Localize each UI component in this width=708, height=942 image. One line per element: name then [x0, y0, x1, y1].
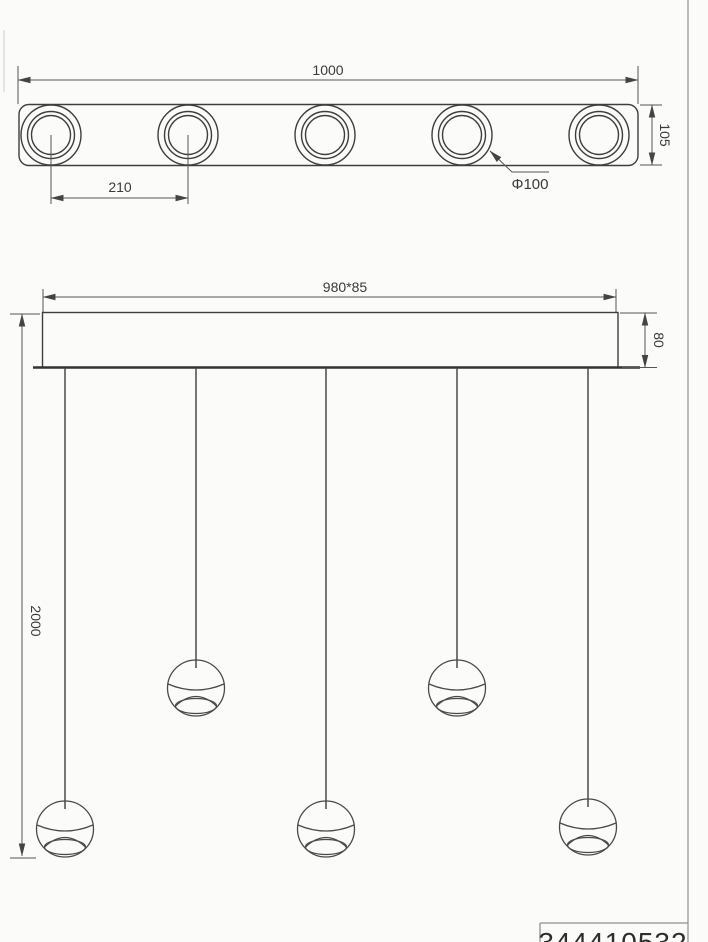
front-dim-canopy-height-label: 80 [651, 332, 667, 348]
front-dim-drop-label: 2000 [28, 605, 44, 636]
canopy-outline [43, 313, 619, 368]
pendant-globe-5 [560, 799, 617, 855]
plan-dim-diameter-label: Φ100 [512, 176, 549, 193]
drawing-page: 1000 [0, 0, 708, 942]
lamp-ring-5 [569, 105, 629, 165]
plan-dim-overall-width-label: 1000 [312, 62, 343, 78]
pendant-globe-2 [168, 660, 225, 716]
pendant-globe-1 [37, 801, 94, 857]
front-dim-drop [10, 314, 40, 858]
plan-view: 1000 [18, 62, 673, 204]
pendant-globe-4 [429, 660, 486, 716]
lamp-ring-4 [432, 105, 492, 165]
front-dim-canopy-label: 980*85 [323, 279, 368, 295]
plan-dim-bar-height-label: 105 [657, 123, 673, 147]
part-number: 344410532 [538, 927, 687, 942]
front-view: 980*85 80 2000 [10, 279, 667, 858]
lamp-bar-outline [19, 105, 638, 166]
technical-drawing: 1000 [0, 0, 708, 942]
pendant-globe-3 [298, 801, 355, 857]
lamp-ring-3 [295, 105, 355, 165]
plan-dim-spacing-label: 210 [108, 179, 132, 195]
diameter-leader-line [490, 151, 549, 172]
